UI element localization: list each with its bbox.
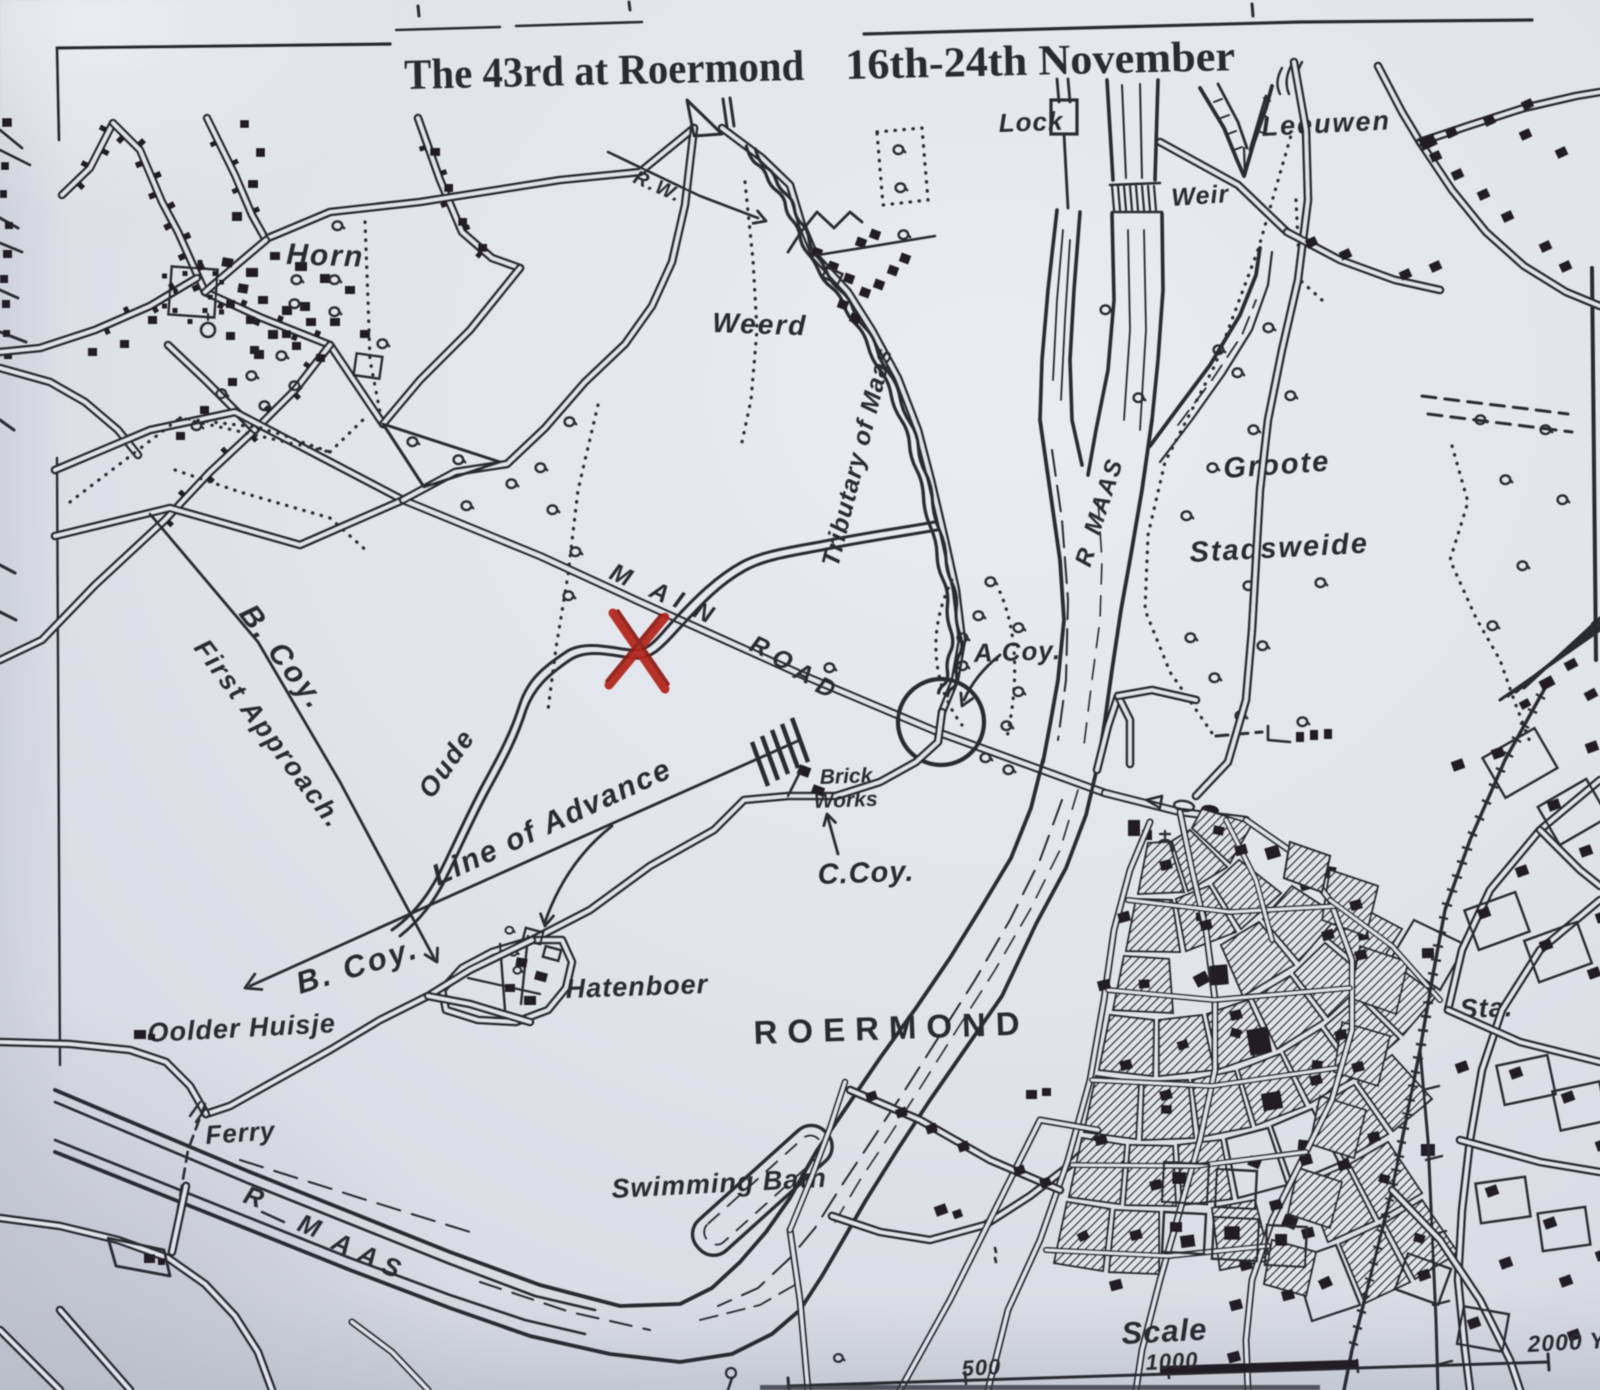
svg-text:Brick: Brick — [819, 764, 874, 789]
svg-text:16th-24th November: 16th-24th November — [845, 33, 1236, 89]
svg-text:A.Coy.: A.Coy. — [972, 635, 1061, 668]
svg-text:500: 500 — [961, 1354, 1002, 1381]
svg-text:2000 Yd: 2000 Yd — [1526, 1326, 1600, 1357]
svg-text:Weerd: Weerd — [712, 307, 808, 341]
svg-text:C.Coy.: C.Coy. — [817, 856, 915, 891]
svg-text:Works: Works — [813, 788, 878, 813]
svg-text:Ferry: Ferry — [204, 1115, 276, 1150]
svg-text:Hatenboer: Hatenboer — [565, 969, 709, 1004]
svg-text:Scale: Scale — [1121, 1312, 1209, 1351]
svg-text:1000: 1000 — [1145, 1347, 1199, 1375]
svg-text:The 43rd at Roermond: The 43rd at Roermond — [404, 43, 805, 99]
svg-text:Weir: Weir — [1170, 180, 1230, 212]
svg-text:Horn: Horn — [286, 238, 365, 274]
svg-text:Lock: Lock — [998, 106, 1064, 138]
